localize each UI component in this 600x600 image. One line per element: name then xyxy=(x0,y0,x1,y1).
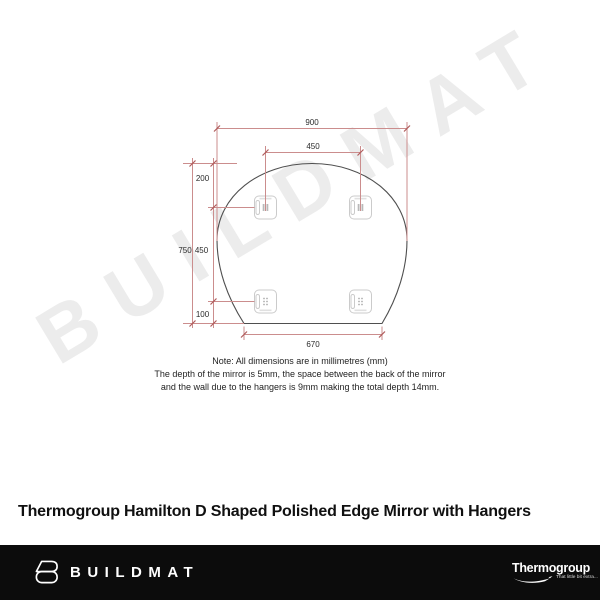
thermogroup-logo: Thermogroup That little bit extra... xyxy=(512,562,586,584)
dim-label-hanger-to-bottom: 100 xyxy=(196,310,210,319)
buildmat-b-icon xyxy=(33,557,60,588)
hanger-bottom-left xyxy=(255,290,277,313)
hanger-bottom-right xyxy=(350,290,372,313)
dim-label-total-height: 750 xyxy=(178,246,192,255)
hanger-brackets xyxy=(255,196,372,313)
buildmat-logo: BUILDMAT xyxy=(33,557,199,588)
dimension-lines xyxy=(183,122,407,340)
page: BUILDMAT xyxy=(0,0,600,600)
footer-bar: BUILDMAT Thermogroup That little bit ext… xyxy=(0,545,600,600)
thermogroup-swoosh-icon xyxy=(512,575,554,584)
note-line-2: The depth of the mirror is 5mm, the spac… xyxy=(0,368,600,381)
dim-label-total-width: 900 xyxy=(305,118,319,127)
thermogroup-wordmark: Thermogroup xyxy=(512,562,586,575)
note-line-3: and the wall due to the hangers is 9mm m… xyxy=(0,381,600,394)
note-line-1: Note: All dimensions are in millimetres … xyxy=(0,355,600,368)
product-title: Thermogroup Hamilton D Shaped Polished E… xyxy=(18,503,531,521)
buildmat-wordmark: BUILDMAT xyxy=(70,564,199,581)
dim-label-bottom-width: 670 xyxy=(306,340,320,349)
thermogroup-tagline: That little bit extra... xyxy=(556,575,598,581)
dim-label-hanger-vertical-spacing: 450 xyxy=(195,246,209,255)
dim-label-top-to-hanger: 200 xyxy=(196,174,210,183)
dimension-note: Note: All dimensions are in millimetres … xyxy=(0,355,600,394)
dim-label-hanger-spacing: 450 xyxy=(306,142,320,151)
dimension-ticks xyxy=(190,126,411,338)
mirror-outline xyxy=(217,164,407,324)
